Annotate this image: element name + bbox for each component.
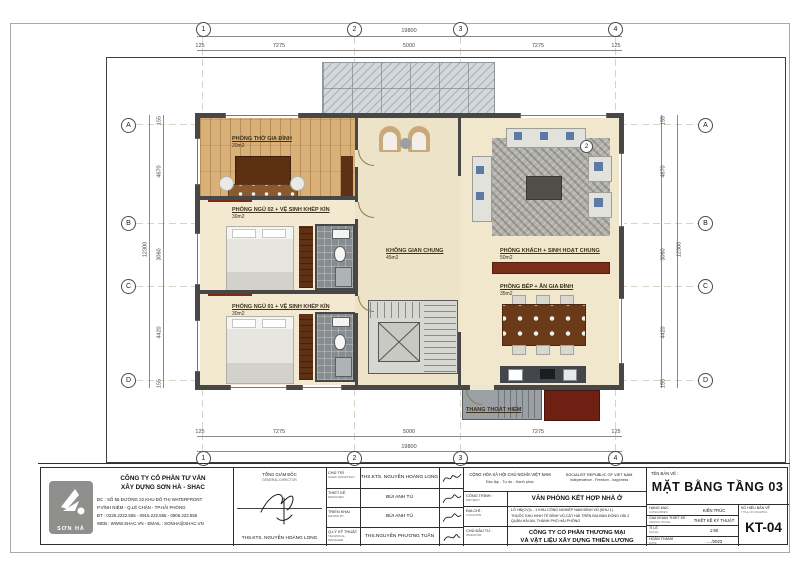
- meta-row: GIAI ĐOẠN THIẾT KẾ DESIGN STAGE: [649, 516, 693, 524]
- stair-treads: [498, 390, 540, 418]
- republic-vn: CỘNG HÒA XÃ HỘI CHỦ NGHĨA VIỆT NAM Độc l…: [467, 472, 553, 485]
- dim-seg: 4670: [659, 157, 668, 187]
- door-gap: [355, 296, 358, 313]
- role-name: THS.KTS. NGUYỄN HOÀNG LONG: [360, 475, 439, 480]
- republic-en: SOCIALIST REPUBLIC OF VIET NAM Independe…: [555, 472, 643, 484]
- dim-seg: 4670: [155, 157, 164, 187]
- window: [619, 153, 624, 227]
- grid-label: 2: [353, 26, 357, 33]
- project-label: CÔNG TRÌNH : PROJECT: [466, 493, 506, 502]
- window: [520, 113, 607, 118]
- dim-line: [197, 436, 622, 437]
- investor-line1: CÔNG TY CỔ PHẦN THƯƠNG MẠI: [508, 529, 646, 537]
- company-name-line1: CÔNG TY CỔ PHẦN TƯ VẤN: [97, 475, 229, 484]
- signature: [441, 510, 463, 524]
- role-label-en: DESIGNER: [328, 495, 359, 499]
- role-row: TRIỂN KHAI DRAWN BY: [328, 509, 359, 518]
- company-name-line2: XÂY DỰNG SƠN HÀ - SHAC: [97, 484, 229, 493]
- company-address: ĐC : SỐ 55 ĐƯỜNG 22 KHU ĐÔ THỊ WATERFRON…: [97, 496, 231, 504]
- partition-wall: [200, 290, 357, 294]
- titleblock: SƠN HÀ CÔNG TY CỔ PHẦN TƯ VẤN XÂY DỰNG S…: [40, 467, 788, 545]
- dim-seg: 4420: [659, 318, 668, 348]
- titleblock-top-rule: [38, 463, 790, 464]
- room-label-bed01: PHÒNG NGỦ 01 + VỆ SINH KHÉP KÍN: [232, 304, 330, 310]
- room-label-escape-stair: THANG THOÁT HIỂM: [466, 407, 521, 413]
- drawing-title-header: TÊN BẢN VẼ :: [651, 471, 678, 476]
- meta-row: TỈ LỆ SCALE: [649, 526, 693, 534]
- dim-seg: 5000: [394, 428, 424, 436]
- role-label-en: TECHNICAL MANAGER: [328, 534, 359, 542]
- meta-label-en: SCALE: [649, 530, 693, 534]
- company-name: CÔNG TY CỔ PHẦN TƯ VẤN XÂY DỰNG SƠN HÀ -…: [97, 475, 229, 492]
- grid-bubble-4-top: 4: [608, 22, 623, 37]
- dim-seg: 5000: [394, 42, 424, 50]
- dim-overall-top: 19800: [389, 27, 429, 35]
- grid-label: B: [703, 220, 708, 227]
- signature: [441, 491, 463, 505]
- investor-label-en: INVESTOR: [466, 533, 506, 537]
- drawing-number-label-en: TITLE OF DRAWING: [741, 510, 787, 514]
- room-label-bed02: PHÒNG NGỦ 02 + VỆ SINH KHÉP KÍN: [232, 207, 330, 213]
- dim-overall-bottom: 19800: [389, 443, 429, 451]
- section-marker-label: 2: [585, 143, 589, 150]
- meta-value: 1:90: [691, 528, 737, 533]
- grid-bubble-D-right: D: [698, 373, 713, 388]
- meta-row: HẠNG MỤC CATEGORIES: [649, 506, 693, 514]
- grid-label: 4: [614, 455, 618, 462]
- republic-vn-line1: CỘNG HÒA XÃ HỘI CHỦ NGHĨA VIỆT NAM: [467, 472, 553, 479]
- dim-line: [197, 50, 622, 51]
- dim-seg: 155: [155, 369, 164, 399]
- role-label-en: CHIEF ARCHITECT: [328, 475, 359, 479]
- window: [195, 320, 200, 372]
- window: [302, 385, 342, 390]
- company-contact: ĐC : SỐ 55 ĐƯỜNG 22 KHU ĐÔ THỊ WATERFRON…: [97, 496, 231, 529]
- grid-label: 1: [202, 455, 206, 462]
- grid-bubble-C-right: C: [698, 279, 713, 294]
- room-area-bed02: 30m2: [232, 214, 245, 220]
- company-address: P.VĨNH NIỆM - Q.LÊ CHÂN - TP.HẢI PHÒNG: [97, 504, 231, 512]
- role-row: THIẾT KẾ DESIGNER: [328, 490, 359, 499]
- grid-bubble-B-left: B: [121, 216, 136, 231]
- grid-bubble-C-left: C: [121, 279, 136, 294]
- company-phone: ĐT : 0225.2222.555 - 0916.222.555 - 0906…: [97, 512, 231, 520]
- director-signature: [253, 482, 313, 526]
- grid-label: D: [126, 377, 131, 384]
- grid-bubble-A-left: A: [121, 118, 136, 133]
- window: [619, 298, 624, 364]
- drawing-number-label: SỐ HIỆU BẢN VẼ TITLE OF DRAWING: [741, 506, 787, 514]
- meta-label-en: DESIGN STAGE: [649, 520, 693, 524]
- dim-seg: 3060: [659, 240, 668, 270]
- room-label-kitchen: PHÒNG BẾP + ĂN GIA ĐÌNH: [500, 284, 573, 290]
- role-row: CHỦ TRÌ CHIEF ARCHITECT: [328, 470, 359, 479]
- section-marker: 2: [580, 140, 593, 153]
- window: [195, 233, 200, 285]
- grid-label: 2: [353, 455, 357, 462]
- door-gap: [355, 150, 358, 167]
- role-name: THS.NGUYỄN PHƯƠNG TUẤN: [360, 534, 439, 539]
- room-label-living: PHÒNG KHÁCH + SINH HOẠT CHUNG: [500, 248, 600, 254]
- dim-seg: 155: [659, 369, 668, 399]
- dim-seg: 7275: [523, 428, 553, 436]
- grid-label: 1: [202, 26, 206, 33]
- meta-value: KIẾN TRÚC: [691, 508, 737, 513]
- partition-wall: [200, 196, 357, 200]
- grid-label: A: [126, 122, 131, 129]
- signature: [441, 530, 463, 544]
- partition-stub: [458, 332, 461, 385]
- role-name: BÙI ANH TÚ: [360, 514, 439, 519]
- location-label-en: LOCATION: [466, 513, 506, 517]
- window: [225, 113, 299, 118]
- room-area-common: 45m2: [386, 255, 399, 261]
- director-name: THS.KTS. NGUYỄN HOÀNG LONG: [233, 535, 326, 540]
- dim-seg: 125: [607, 42, 625, 50]
- investor-value: CÔNG TY CỔ PHẦN THƯƠNG MẠI VÀ VẬT LIỆU X…: [508, 529, 646, 546]
- role-label-en: DRAWN BY: [328, 514, 359, 518]
- door-gap: [355, 202, 358, 219]
- dim-seg: 125: [607, 428, 625, 436]
- meta-row: HOÀN THÀNH DATE: [649, 537, 693, 545]
- dim-seg: 155: [659, 106, 668, 136]
- meta-label-en: CATEGORIES: [649, 510, 693, 514]
- role-row: Q.LÝ KỸ THUẬT TECHNICAL MANAGER: [328, 529, 359, 542]
- grid-label: C: [703, 283, 708, 290]
- dim-line: [197, 36, 622, 37]
- dim-seg: 7275: [264, 42, 294, 50]
- dim-seg: 7275: [264, 428, 294, 436]
- window: [195, 138, 200, 185]
- skylight-hatch: [322, 62, 495, 118]
- dim-line: [197, 451, 622, 452]
- grid-bubble-A-right: A: [698, 118, 713, 133]
- location-line: QUẬN HẢI AN, THÀNH PHỐ HẢI PHÒNG: [511, 519, 645, 525]
- dim-seg: 4420: [155, 318, 164, 348]
- drawing-title: MẶT BẰNG TẦNG 03: [646, 480, 789, 494]
- dim-seg: 125: [191, 42, 209, 50]
- grid-label: D: [703, 377, 708, 384]
- grid-bubble-2-top: 2: [347, 22, 362, 37]
- dim-seg: 155: [155, 106, 164, 136]
- dim-seg: 125: [191, 428, 209, 436]
- room-area-living: 50m2: [500, 255, 513, 261]
- company-web-email: WEB : WWW.SHAC.VN - EMAIL : SONHA@SHAC.V…: [97, 520, 231, 528]
- role-name: BÙI ANH TÚ: [360, 495, 439, 500]
- canopy-block: [544, 390, 600, 421]
- investor-line2: VÀ VẬT LIỆU XÂY DỰNG THIÊN LƯƠNG: [508, 537, 646, 545]
- grid-label: 4: [614, 26, 618, 33]
- meta-value: THIẾT KẾ KỸ THUẬT: [691, 518, 737, 523]
- floor-plan-sheet: PHÒNG THỜ GIA ĐÌNH 20m2 PHÒNG NGỦ 02 + V…: [0, 0, 800, 566]
- project-value: VĂN PHÒNG KẾT HỢP NHÀ Ở: [508, 495, 646, 502]
- dim-overall-left: 12300: [141, 235, 150, 265]
- grid-label: 3: [459, 455, 463, 462]
- room-area-bed01: 30m2: [232, 311, 245, 317]
- grid-label: B: [126, 220, 131, 227]
- partition-stub: [458, 118, 461, 176]
- dim-seg: 3060: [155, 240, 164, 270]
- dim-overall-right: 12300: [675, 235, 684, 265]
- door-gap: [470, 385, 494, 390]
- room-area-prayer: 20m2: [232, 143, 245, 149]
- grid-bubble-1-top: 1: [196, 22, 211, 37]
- room-area-kitchen: 35m2: [500, 291, 513, 297]
- room-label-prayer: PHÒNG THỜ GIA ĐÌNH: [232, 136, 292, 142]
- room-label-common: KHÔNG GIAN CHUNG: [386, 248, 443, 254]
- grid-bubble-D-left: D: [121, 373, 136, 388]
- grid-bubble-3-top: 3: [453, 22, 468, 37]
- grid-bubble-B-right: B: [698, 216, 713, 231]
- republic-en-line2: Independence - Freedom - happiness: [555, 478, 643, 484]
- grid-label: 3: [459, 26, 463, 33]
- project-label-en: PROJECT: [466, 498, 506, 502]
- sonha-logo-icon: [49, 481, 93, 521]
- location-value: LÔ HĐ(CV)1 - 1 KHU CÔNG NGHIỆP NAM ĐÌNH …: [511, 508, 645, 525]
- meta-value: ...../2023: [691, 539, 737, 544]
- dim-seg: 7275: [523, 42, 553, 50]
- location-label: ĐỊA CHỈ : LOCATION: [466, 508, 506, 517]
- company-logo: SƠN HÀ: [49, 481, 93, 534]
- grid-label: C: [126, 283, 131, 290]
- signature: [441, 471, 463, 485]
- grid-label: A: [703, 122, 708, 129]
- republic-vn-line2: Độc lập - Tự do - Hạnh phúc: [467, 479, 553, 485]
- window: [230, 385, 287, 390]
- logo-wordmark: SƠN HÀ: [49, 526, 93, 532]
- investor-label: CHỦ ĐẦU TƯ : INVESTOR: [466, 528, 506, 537]
- meta-label-en: DATE: [649, 541, 693, 545]
- drawing-number: KT-04: [738, 520, 789, 535]
